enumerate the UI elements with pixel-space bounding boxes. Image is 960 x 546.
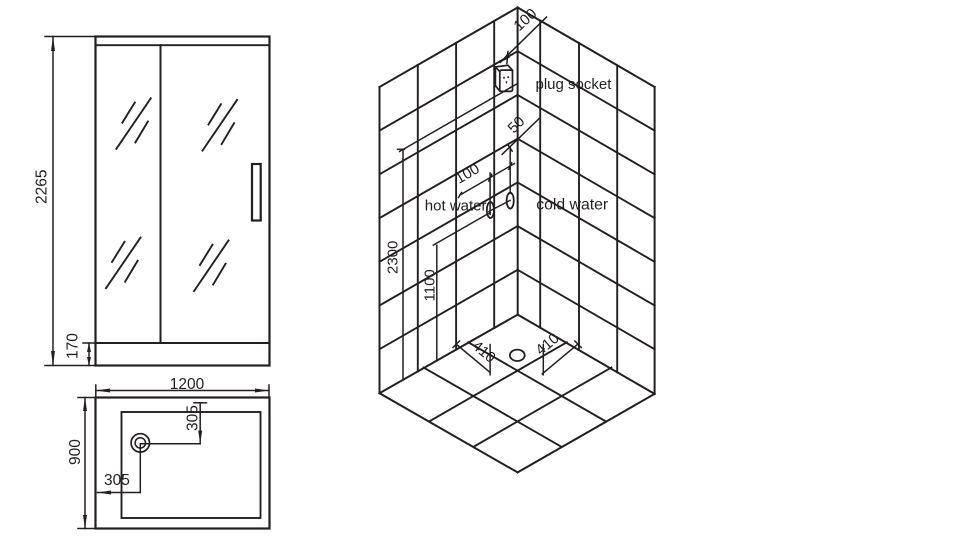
svg-text:2265: 2265 <box>34 170 51 204</box>
svg-text:305: 305 <box>104 472 130 489</box>
svg-text:900: 900 <box>67 439 84 465</box>
svg-text:1100: 1100 <box>422 269 439 301</box>
svg-text:cold water: cold water <box>536 197 608 214</box>
svg-text:410: 410 <box>469 337 499 366</box>
svg-text:plug socket: plug socket <box>536 76 613 93</box>
svg-text:1200: 1200 <box>170 376 205 393</box>
svg-text:410: 410 <box>532 330 562 359</box>
svg-text:305: 305 <box>185 405 202 431</box>
svg-text:170: 170 <box>65 333 82 359</box>
svg-text:2300: 2300 <box>385 241 402 274</box>
svg-text:hot water: hot water <box>425 198 487 215</box>
